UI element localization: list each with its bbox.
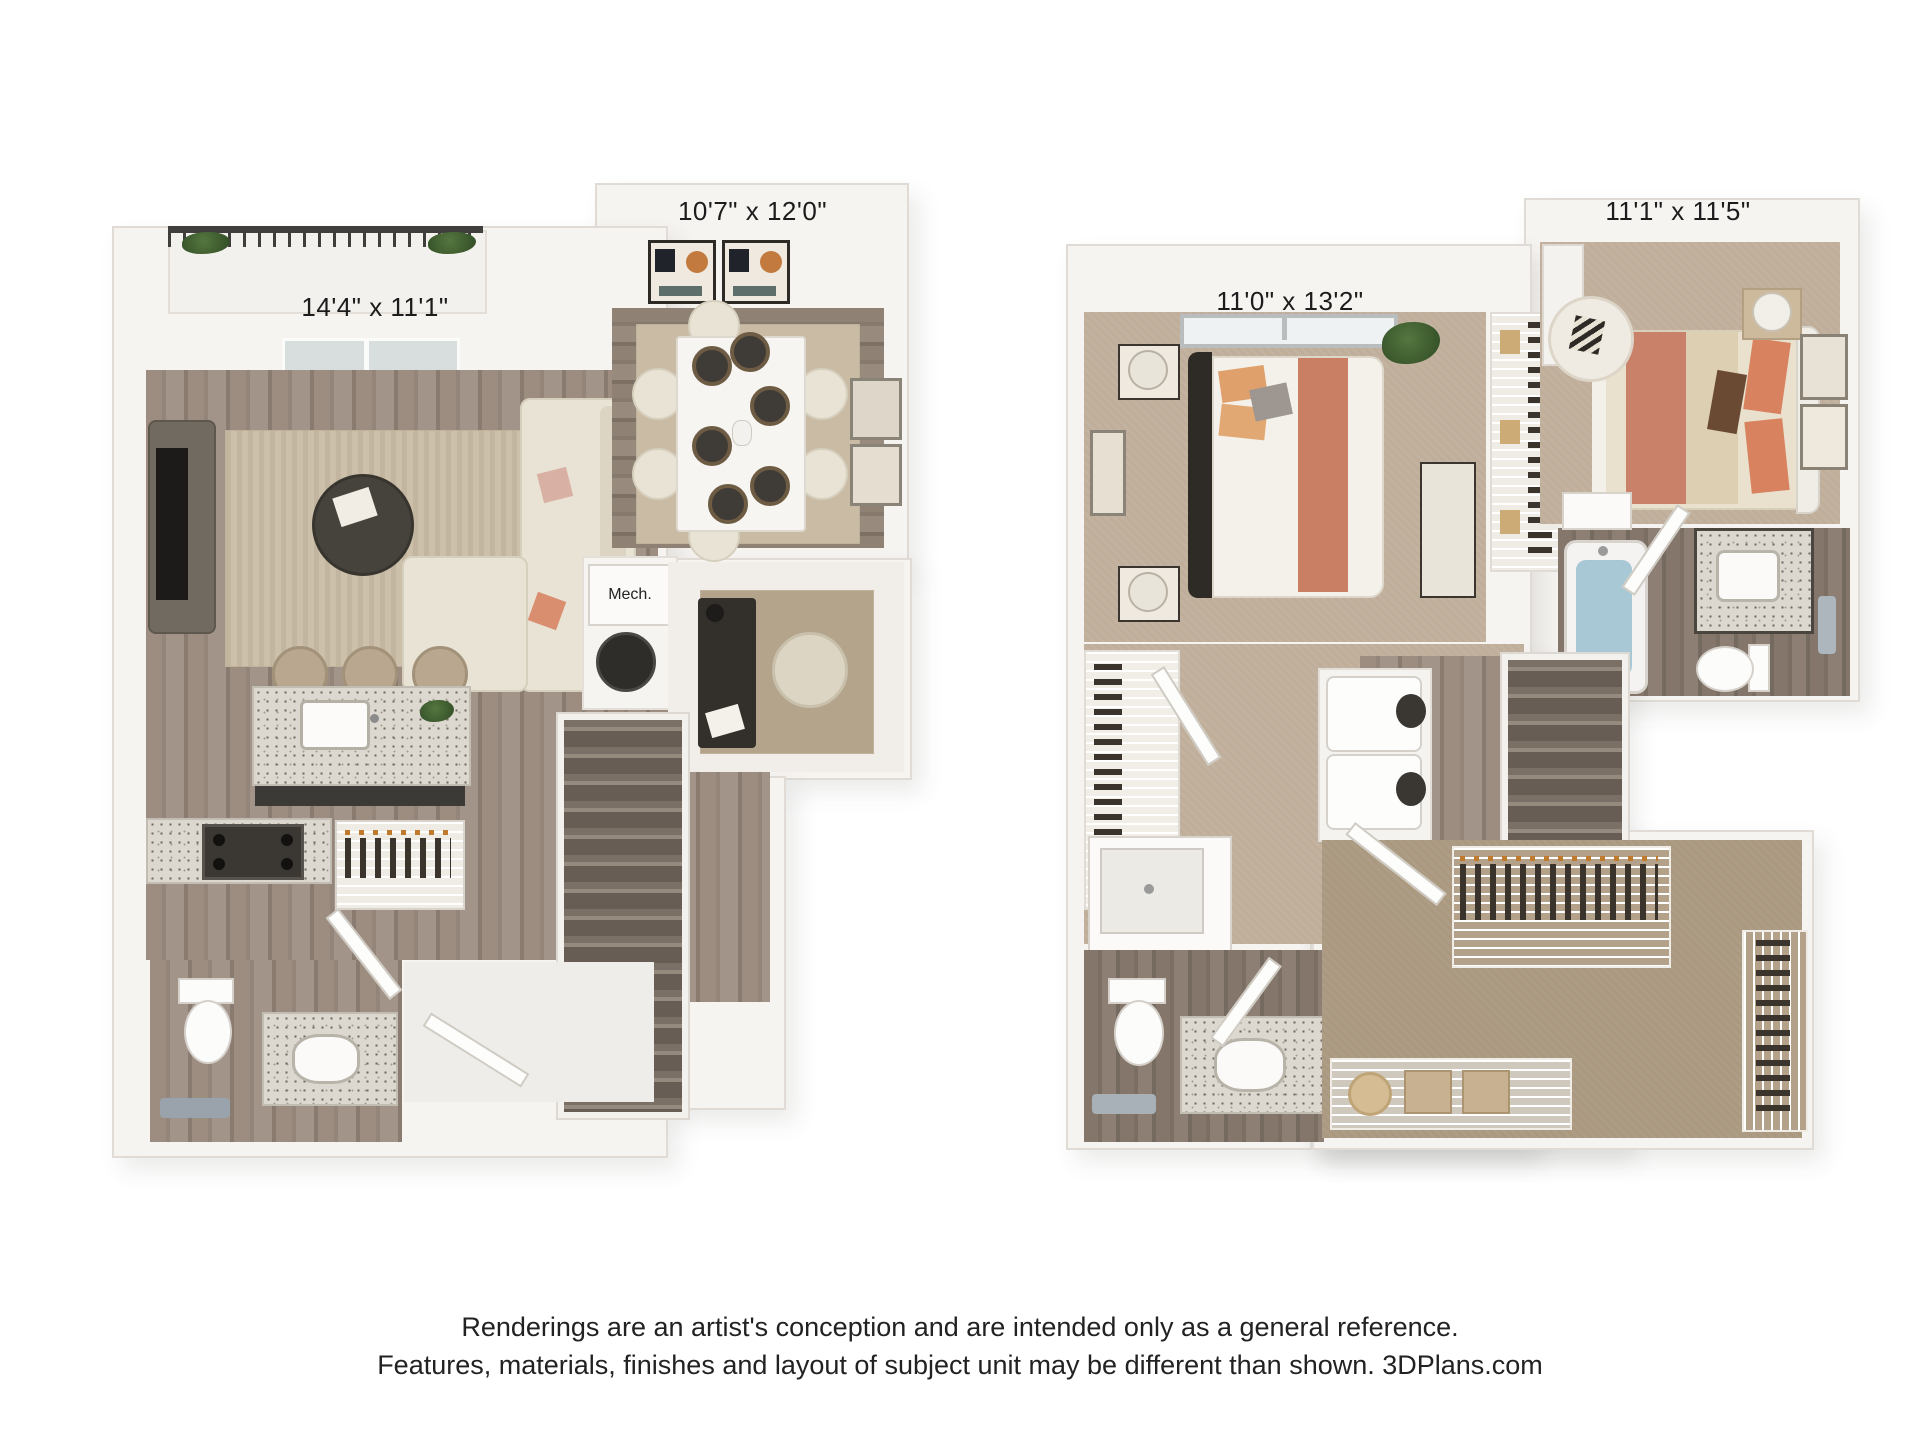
office-desk-lamp (706, 604, 724, 622)
bedroom1-window (1180, 314, 1398, 348)
dining-centerpiece (732, 420, 752, 446)
island-sink (300, 700, 370, 750)
powder-towel (160, 1098, 230, 1118)
bedroom1-window-mullion (1282, 314, 1287, 340)
walkin-basket (1462, 1070, 1510, 1114)
bedroom1-lamp-bottom (1128, 572, 1168, 612)
bedroom2-blanket-coral (1626, 332, 1686, 504)
tv-screen (156, 448, 188, 600)
bathroom1-towel (1092, 1094, 1156, 1114)
bathroom2-linen-shelf (1562, 492, 1632, 530)
dining-table (676, 336, 806, 532)
dining-side-art-top (850, 378, 902, 440)
bedroom2-wall-art-2 (1800, 404, 1848, 470)
dryer-drum (1396, 772, 1426, 806)
bathroom1-sink (1214, 1038, 1286, 1092)
closet-box (1500, 420, 1520, 444)
walkin-hanger-rail-top (1460, 856, 1658, 861)
dining-room-dimensions: 10'7" x 12'0" (655, 196, 850, 227)
washer-drum (1396, 694, 1426, 728)
walkin-basket (1404, 1070, 1452, 1114)
powder-sink (292, 1034, 360, 1084)
walkin-clothes-top (1460, 864, 1658, 920)
mech-box: Mech. (588, 564, 672, 626)
mech-label: Mech. (608, 586, 652, 604)
bathroom2-towel (1818, 596, 1836, 654)
stove (202, 824, 304, 880)
bedroom2-wall-art-1 (1800, 334, 1848, 400)
dining-wall-art-right (722, 240, 790, 304)
pantry-shoes (345, 838, 451, 878)
walkin-clothes-right (1756, 940, 1790, 1118)
disclaimer-line1: Renderings are an artist's conception an… (0, 1312, 1920, 1343)
closet-box (1500, 510, 1520, 534)
bedroom2-lamp (1752, 292, 1792, 332)
dining-wall-art-left (648, 240, 716, 304)
floor-plan-image: 14'4" x 11'1" 10'7" x 12'0" (0, 0, 1920, 1440)
shower-drain (1144, 884, 1154, 894)
closet-box (1500, 330, 1520, 354)
bathtub-faucet (1598, 546, 1608, 556)
bedroom2-dimensions: 11'1" x 11'5" (1578, 196, 1778, 227)
bedroom1-lamp-top (1128, 350, 1168, 390)
walkin-hat (1348, 1072, 1392, 1116)
bathroom1-toilet-bowl (1114, 1000, 1164, 1066)
powder-toilet-bowl (184, 1000, 232, 1064)
pantry-hanger-rail (345, 830, 451, 835)
office-chair (772, 632, 848, 708)
living-room-dimensions: 14'4" x 11'1" (275, 292, 475, 323)
bedroom1-dresser (1420, 462, 1476, 598)
bedroom1-wall-art (1090, 430, 1126, 516)
mech-water-heater (596, 632, 656, 692)
disclaimer-line2: Features, materials, finishes and layout… (0, 1350, 1920, 1381)
dining-side-art-bottom (850, 444, 902, 506)
bedroom1-throw-blanket (1298, 358, 1348, 592)
bathroom2-sink (1716, 550, 1780, 602)
bathroom2-toilet-bowl (1696, 646, 1754, 692)
bedroom1-headboard (1188, 352, 1212, 598)
bedroom2-pillow-coral-2 (1744, 418, 1789, 494)
kitchen-lower-cabinets (255, 786, 465, 806)
island-faucet (370, 714, 379, 723)
